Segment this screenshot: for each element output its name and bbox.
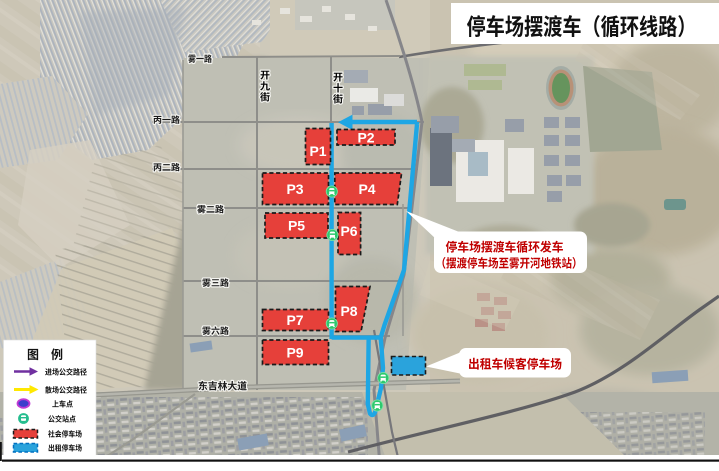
svg-text:P9: P9 — [286, 345, 303, 361]
svg-text:P7: P7 — [286, 312, 303, 328]
svg-text:P1: P1 — [309, 143, 326, 159]
svg-text:P6: P6 — [340, 223, 357, 239]
svg-text:P8: P8 — [340, 303, 357, 319]
svg-text:P3: P3 — [286, 181, 303, 197]
svg-text:P2: P2 — [357, 130, 374, 146]
svg-text:P4: P4 — [358, 181, 375, 197]
svg-text:P5: P5 — [288, 218, 305, 234]
